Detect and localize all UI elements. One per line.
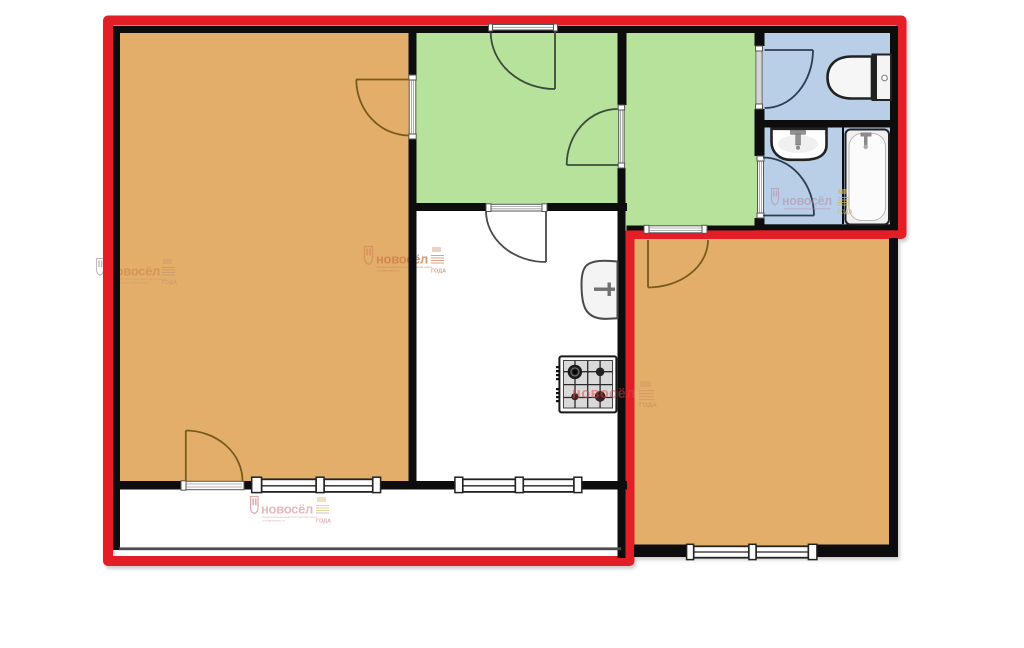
svg-text:и недвижимости: и недвижимости bbox=[262, 519, 285, 523]
svg-text:новосёл: новосёл bbox=[572, 386, 636, 402]
svg-text:ГОДА: ГОДА bbox=[431, 269, 446, 275]
svg-text:ГОДА: ГОДА bbox=[639, 402, 657, 409]
svg-text:ГОДА: ГОДА bbox=[162, 280, 177, 286]
svg-text:центр недвижимости: центр недвижимости bbox=[120, 281, 149, 285]
svg-text:новосёл: новосёл bbox=[782, 194, 832, 208]
svg-text:ГОДА: ГОДА bbox=[838, 210, 853, 216]
svg-text:ГОДА: ГОДА bbox=[316, 519, 331, 525]
svg-text:и недвижимости: и недвижимости bbox=[377, 269, 400, 273]
